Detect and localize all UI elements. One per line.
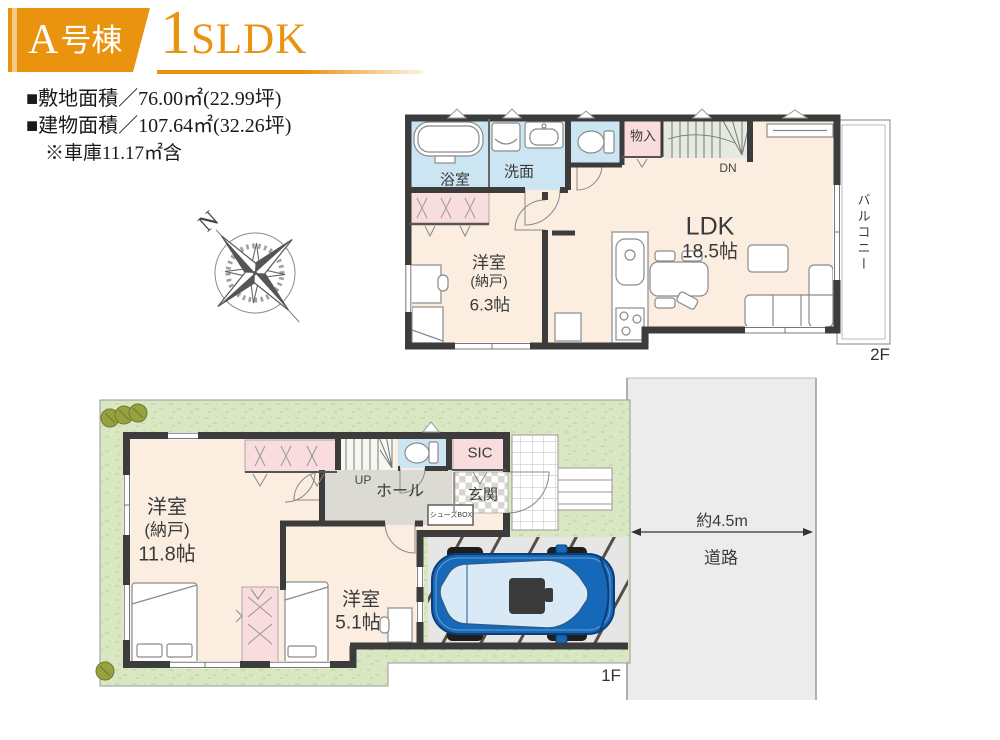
site-info-block: ■敷地面積／76.00㎡(22.99坪) ■建物面積／107.64㎡(32.26…: [26, 86, 291, 167]
chair-icon: [380, 617, 389, 633]
desk-icon: [411, 265, 441, 303]
unit-badge-stripe: [12, 8, 17, 72]
road-label: 道路: [704, 544, 738, 569]
plan-type-digit: 1: [160, 2, 191, 64]
toilet-icon: [405, 443, 429, 463]
car-illustration: [432, 545, 614, 643]
f1-second-room-size-label: 5.1帖: [335, 608, 380, 635]
f1-entry-steps: [558, 468, 612, 510]
washer-icon: [492, 123, 520, 151]
floor-plan-1f-drawing: [95, 372, 825, 705]
bed-icon: [285, 582, 328, 663]
floor-plan-1f: 洋室 (納戸) 11.8帖 UP ホール SIC 玄関 シューズBOX 洋室 5…: [95, 372, 825, 705]
plan-type-title: 1 SLDK: [160, 2, 307, 64]
f1-entrance-label: 玄関: [468, 484, 498, 505]
floor-plan-flyer: A 号棟 1 SLDK ■敷地面積／76.00㎡(22.99坪) ■建物面積／1…: [0, 0, 1000, 740]
floor-plan-2f-drawing: [405, 105, 905, 370]
unit-badge-label: A 号棟: [28, 8, 122, 72]
f1-porch: [512, 435, 558, 530]
dining-table-icon: [650, 262, 708, 296]
chair-icon: [655, 251, 675, 261]
f2-ldk-size-label: 18.5帖: [682, 237, 738, 264]
f2-floor-tag: 2F: [870, 345, 890, 365]
kitchen-counter: [612, 232, 648, 343]
f1-main-room-size-label: 11.8帖: [138, 538, 195, 567]
road-width-label: 約4.5m: [696, 507, 748, 531]
f1-stairs-up-label: UP: [355, 473, 372, 487]
f1-sic-label: SIC: [467, 445, 492, 462]
f1-room-divider-closet: [242, 587, 278, 663]
f2-room-size-label: 6.3帖: [470, 291, 511, 316]
building-area-line: ■建物面積／107.64㎡(32.26坪): [26, 113, 291, 140]
f1-main-closet: [245, 440, 337, 472]
compass-north-label: N: [194, 206, 224, 237]
unit-badge: A 号棟: [8, 8, 150, 72]
compass-icon: N: [193, 203, 309, 329]
garage-note-line: ※車庫11.17㎡含: [45, 140, 291, 167]
f2-stairs-dn-label: DN: [719, 161, 736, 175]
car-mirror: [556, 545, 567, 553]
chair-icon: [655, 298, 675, 308]
f2-balcony-label: バルコニー: [854, 193, 873, 273]
f1-hall-label: ホール: [376, 477, 424, 501]
f2-bedroom-closet: [409, 192, 489, 224]
f2-washroom-label: 洗面: [504, 161, 534, 182]
f2-room-label: 洋室: [472, 249, 506, 274]
car-mirror: [556, 635, 567, 643]
unit-letter: A: [28, 19, 58, 61]
site-area-line: ■敷地面積／76.00㎡(22.99坪): [26, 86, 291, 113]
chair-icon: [438, 275, 448, 291]
coffee-table-icon: [748, 245, 788, 272]
road-area: [627, 378, 816, 700]
f2-room-sub-label: (納戸): [470, 271, 507, 291]
bed-icon: [132, 583, 197, 663]
f1-floor-tag: 1F: [601, 666, 621, 686]
plan-type-letters: SLDK: [191, 18, 307, 61]
cabinet-icon: [555, 313, 581, 341]
f2-bath-label: 浴室: [440, 169, 470, 190]
toilet-icon: [578, 131, 604, 153]
f1-shoes-box-label: シューズBOX: [430, 510, 472, 520]
floor-plan-2f: 浴室 洗面 物入 DN LDK 18.5帖 洋室 (納戸) 6.3帖 バルコニー…: [405, 105, 905, 370]
f2-storage-label: 物入: [630, 126, 656, 145]
car-roof-box: [509, 578, 545, 614]
desk-icon: [388, 608, 412, 642]
bed-icon: [412, 307, 443, 343]
unit-suffix: 号棟: [60, 25, 122, 56]
title-underline: [157, 70, 423, 74]
